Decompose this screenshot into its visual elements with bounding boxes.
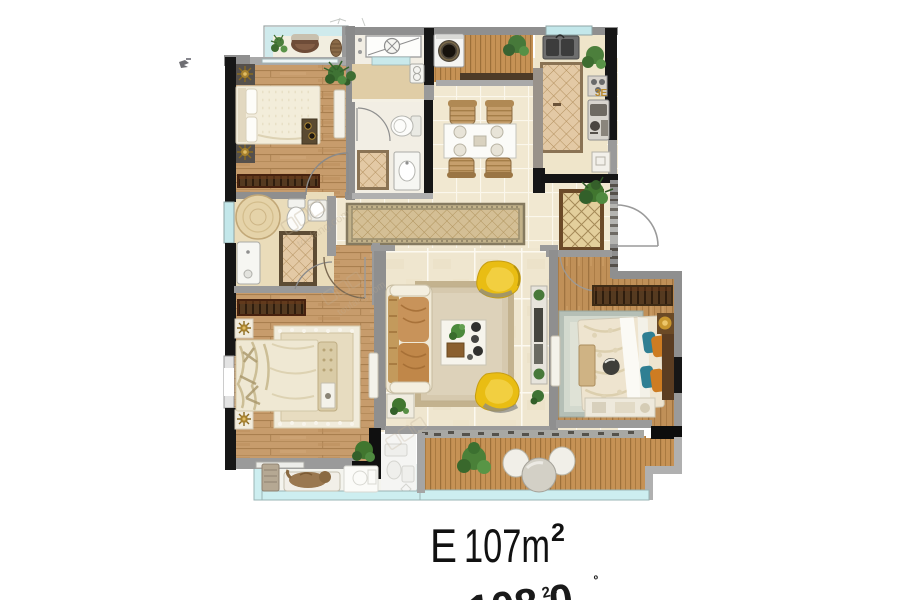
svg-text:2: 2 bbox=[551, 519, 565, 547]
svg-text:E: E bbox=[430, 519, 457, 572]
svg-text:3E: 3E bbox=[595, 88, 608, 99]
svg-text:107m: 107m bbox=[464, 519, 550, 572]
